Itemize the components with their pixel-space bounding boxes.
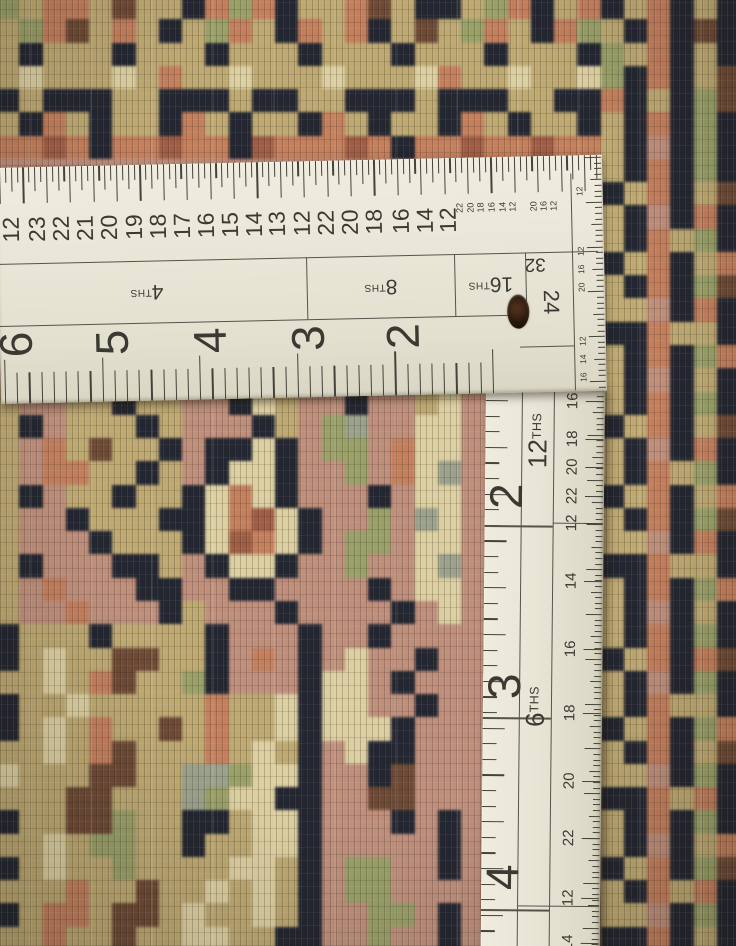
rug-cell xyxy=(229,624,252,647)
inch-line xyxy=(485,525,553,527)
rug-cell xyxy=(461,624,484,647)
tick-mark xyxy=(595,230,602,231)
rug-cell xyxy=(670,880,693,903)
rug-cell xyxy=(717,648,736,671)
rug-cell xyxy=(89,415,112,438)
rug-cell xyxy=(298,461,321,484)
rug-cell xyxy=(647,136,670,159)
ruler-number: 14 xyxy=(560,934,575,946)
rug-cell xyxy=(136,903,159,926)
rug-cell xyxy=(670,694,693,717)
rug-cell xyxy=(647,112,670,135)
tick-mark xyxy=(594,174,601,175)
rug-cell xyxy=(368,485,391,508)
tick-mark xyxy=(151,370,153,401)
rug-cell xyxy=(670,252,693,275)
rug-cell xyxy=(182,578,205,601)
rug-cell xyxy=(252,741,275,764)
rug-cell xyxy=(415,578,438,601)
rug-cell xyxy=(159,508,182,531)
tick-mark xyxy=(592,916,599,917)
rug-cell xyxy=(298,485,321,508)
tick-mark xyxy=(592,866,599,867)
tick-mark xyxy=(356,160,358,175)
rug-cell xyxy=(577,43,600,66)
rug-cell xyxy=(391,717,414,740)
rug-cell xyxy=(89,89,112,112)
rug-cell xyxy=(670,159,693,182)
tick-mark xyxy=(403,159,405,174)
tick-mark xyxy=(594,168,601,169)
rug-cell xyxy=(159,717,182,740)
tick-mark xyxy=(587,480,603,481)
rug-cell xyxy=(182,43,205,66)
rug-cell xyxy=(229,554,252,577)
rug-cell xyxy=(229,648,252,671)
rug-cell xyxy=(19,531,42,554)
rug-cell xyxy=(624,531,647,554)
rug-cell xyxy=(624,461,647,484)
rug-cell xyxy=(415,392,438,415)
rug-cell xyxy=(205,880,228,903)
rug-cell xyxy=(624,717,647,740)
tick-mark xyxy=(593,804,600,805)
rug-cell xyxy=(670,787,693,810)
tick-mark xyxy=(221,163,223,187)
rug-cell xyxy=(19,43,42,66)
rug-cell xyxy=(438,834,461,857)
rug-cell xyxy=(438,531,461,554)
rug-cell xyxy=(601,159,624,182)
rug-cell xyxy=(601,648,624,671)
rug-cell xyxy=(670,136,693,159)
rug-cell xyxy=(694,508,717,531)
tick-mark xyxy=(597,401,604,402)
rug-cell xyxy=(275,880,298,903)
tick-mark xyxy=(98,166,100,181)
ruler-number: 16 xyxy=(389,208,413,234)
ruler-number: 13 xyxy=(266,211,290,237)
rug-cell xyxy=(229,834,252,857)
rug-cell xyxy=(66,787,89,810)
tick-mark xyxy=(595,564,602,565)
tick-mark xyxy=(592,502,603,503)
rug-cell xyxy=(275,66,298,89)
rug-cell xyxy=(694,43,717,66)
ruler-number-large: 2 xyxy=(483,483,529,509)
rug-cell xyxy=(670,461,693,484)
rug-cell xyxy=(275,857,298,880)
tick-mark xyxy=(394,351,396,395)
rug-cell xyxy=(345,415,368,438)
rug-cell xyxy=(345,903,368,926)
ruler-number: 15 xyxy=(219,212,243,238)
ruler-number: 16 xyxy=(195,212,219,238)
rug-cell xyxy=(694,136,717,159)
rug-cell xyxy=(694,89,717,112)
rug-cell xyxy=(275,787,298,810)
tick-mark xyxy=(592,872,599,873)
rug-cell xyxy=(229,601,252,624)
rug-cell xyxy=(601,229,624,252)
rug-cell xyxy=(484,89,507,112)
framing-square-horizontal-arm: 1223222120191817161514131222201816141222… xyxy=(0,155,607,404)
rug-cell xyxy=(694,322,717,345)
tick-mark xyxy=(596,485,603,486)
rug-cell xyxy=(624,485,647,508)
rug-cell xyxy=(717,205,736,228)
rug-cell xyxy=(624,345,647,368)
ruler-number-small: 16 xyxy=(539,201,548,211)
ruler-hole xyxy=(507,294,530,328)
rug-cell xyxy=(112,43,135,66)
rug-cell xyxy=(19,601,42,624)
ruler-number-large: 3 xyxy=(481,673,527,699)
rug-cell xyxy=(112,601,135,624)
tick-mark xyxy=(57,167,59,191)
tick-mark xyxy=(34,167,36,191)
tick-mark xyxy=(589,771,600,772)
rug-cell xyxy=(461,578,484,601)
rug-cell xyxy=(43,694,66,717)
tick-mark xyxy=(482,852,496,853)
rug-cell xyxy=(0,554,19,577)
rug-cell xyxy=(159,857,182,880)
tick-mark xyxy=(408,159,410,183)
rug-cell xyxy=(89,787,112,810)
rug-cell xyxy=(624,322,647,345)
rug-cell xyxy=(438,19,461,42)
tick-mark xyxy=(598,330,605,331)
rug-cell xyxy=(275,461,298,484)
rug-cell xyxy=(601,671,624,694)
rug-cell xyxy=(298,624,321,647)
rug-cell xyxy=(368,810,391,833)
tick-mark xyxy=(595,575,602,576)
tick-mark xyxy=(597,308,604,309)
rug-cell xyxy=(182,857,205,880)
rug-cell xyxy=(19,741,42,764)
tick-mark xyxy=(596,541,603,542)
tick-mark xyxy=(481,930,495,931)
rug-cell xyxy=(252,903,275,926)
rug-cell xyxy=(508,112,531,135)
rug-cell xyxy=(0,601,19,624)
tick-mark xyxy=(591,592,602,593)
rug-cell xyxy=(89,485,112,508)
rug-cell xyxy=(368,136,391,159)
ruler-number: 18 xyxy=(565,430,580,447)
rug-cell xyxy=(229,43,252,66)
rug-cell xyxy=(182,741,205,764)
tick-mark xyxy=(321,161,323,176)
rug-cell xyxy=(205,764,228,787)
tick-mark xyxy=(593,788,600,789)
tick-mark xyxy=(280,162,282,198)
rug-cell xyxy=(275,43,298,66)
tick-mark xyxy=(126,370,128,401)
tick-mark xyxy=(0,168,1,204)
tick-mark xyxy=(212,368,214,399)
rug-cell xyxy=(205,66,228,89)
rug-cell xyxy=(415,717,438,740)
tick-mark xyxy=(483,665,497,666)
tick-mark xyxy=(483,712,497,713)
rug-cell xyxy=(182,554,205,577)
tick-mark xyxy=(482,790,496,791)
rug-cell xyxy=(368,671,391,694)
rug-cell xyxy=(717,438,736,461)
rug-cell xyxy=(508,0,531,19)
rug-cell xyxy=(205,857,228,880)
rug-cell xyxy=(624,694,647,717)
rug-cell xyxy=(182,415,205,438)
tick-mark xyxy=(592,933,599,934)
rug-cell xyxy=(205,671,228,694)
tick-mark xyxy=(594,664,601,665)
rug-cell xyxy=(89,834,112,857)
rug-cell xyxy=(136,112,159,135)
rug-cell xyxy=(461,787,484,810)
rug-cell xyxy=(647,880,670,903)
tick-mark xyxy=(245,163,247,187)
tick-mark xyxy=(273,367,275,398)
rug-cell xyxy=(438,903,461,926)
rug-cell xyxy=(391,787,414,810)
rug-cell xyxy=(322,601,345,624)
rug-cell xyxy=(345,810,368,833)
tick-mark xyxy=(596,491,603,492)
rug-cell xyxy=(252,0,275,19)
rug-cell xyxy=(601,43,624,66)
tick-mark xyxy=(268,162,270,186)
tick-mark xyxy=(520,157,522,172)
rug-cell xyxy=(577,0,600,19)
ruler-number-small: 12 xyxy=(549,201,558,211)
rug-cell xyxy=(275,578,298,601)
tick-mark xyxy=(592,269,603,270)
rug-cell xyxy=(112,880,135,903)
tick-mark xyxy=(596,155,598,179)
tick-mark xyxy=(29,372,31,403)
rug-cell xyxy=(647,461,670,484)
rug-cell xyxy=(415,43,438,66)
rug-cell xyxy=(670,624,693,647)
rug-cell xyxy=(322,880,345,903)
tick-mark xyxy=(584,838,600,839)
rug-cell xyxy=(182,810,205,833)
rug-cell xyxy=(112,485,135,508)
rug-cell xyxy=(438,764,461,787)
ruler-scale-label: 6THS xyxy=(522,686,548,727)
tick-mark xyxy=(596,536,603,537)
rug-cell xyxy=(43,857,66,880)
ruler-number-small: 22 xyxy=(455,203,464,213)
rug-cell xyxy=(159,810,182,833)
rug-cell xyxy=(345,741,368,764)
ruler-number-small: 12 xyxy=(577,246,586,256)
rug-cell xyxy=(415,834,438,857)
rug-cell xyxy=(670,415,693,438)
rug-cell xyxy=(43,554,66,577)
rug-cell xyxy=(531,66,554,89)
rug-cell xyxy=(368,112,391,135)
rug-cell xyxy=(717,322,736,345)
rug-cell xyxy=(415,438,438,461)
rug-cell xyxy=(89,554,112,577)
rug-cell xyxy=(670,485,693,508)
rug-cell xyxy=(182,764,205,787)
rug-cell xyxy=(670,19,693,42)
rug-cell xyxy=(717,298,736,321)
rug-cell xyxy=(275,508,298,531)
rug-cell xyxy=(345,66,368,89)
tick-mark xyxy=(584,155,586,191)
tick-mark xyxy=(17,168,19,183)
rug-cell xyxy=(229,787,252,810)
tick-mark xyxy=(595,580,602,581)
tick-mark xyxy=(291,162,293,186)
rug-cell xyxy=(43,461,66,484)
rug-cell xyxy=(66,485,89,508)
rug-cell xyxy=(229,741,252,764)
rug-cell xyxy=(89,438,112,461)
rug-cell xyxy=(0,694,19,717)
rug-cell xyxy=(89,903,112,926)
tick-mark xyxy=(175,369,177,400)
rug-cell xyxy=(205,624,228,647)
rug-cell xyxy=(647,415,670,438)
rug-cell xyxy=(19,624,42,647)
rug-cell xyxy=(438,717,461,740)
tick-mark xyxy=(593,412,604,413)
tick-mark xyxy=(583,649,601,650)
rug-cell xyxy=(694,903,717,926)
rug-cell xyxy=(577,112,600,135)
rug-cell xyxy=(415,764,438,787)
rug-cell xyxy=(275,136,298,159)
tick-mark xyxy=(486,431,500,432)
tick-mark xyxy=(596,519,603,520)
rug-cell xyxy=(252,112,275,135)
rug-cell xyxy=(43,112,66,135)
rug-cell xyxy=(43,648,66,671)
tick-mark xyxy=(358,365,360,396)
rug-cell xyxy=(252,880,275,903)
tick-mark xyxy=(598,347,605,348)
rug-cell xyxy=(66,66,89,89)
rug-cell xyxy=(275,415,298,438)
rug-photo-scene: 23412THS6THS161820221214161820221214 122… xyxy=(0,0,736,946)
inch-line xyxy=(481,909,549,911)
rug-cell xyxy=(717,764,736,787)
tick-mark xyxy=(373,160,375,196)
rug-cell xyxy=(205,578,228,601)
rug-cell xyxy=(717,182,736,205)
rug-cell xyxy=(670,66,693,89)
rug-cell xyxy=(461,0,484,19)
rug-cell xyxy=(229,927,252,946)
rug-cell xyxy=(670,112,693,135)
rug-cell xyxy=(136,741,159,764)
rug-cell xyxy=(275,601,298,624)
tick-mark xyxy=(496,157,498,172)
rug-cell xyxy=(717,0,736,19)
rug-cell xyxy=(717,624,736,647)
rug-cell xyxy=(345,554,368,577)
rug-cell xyxy=(322,19,345,42)
rug-cell xyxy=(112,787,135,810)
rug-cell xyxy=(252,857,275,880)
rug-cell xyxy=(694,485,717,508)
rug-cell xyxy=(19,554,42,577)
tick-mark xyxy=(492,349,494,393)
rug-cell xyxy=(112,415,135,438)
rug-cell xyxy=(89,880,112,903)
rug-cell xyxy=(508,66,531,89)
tick-mark xyxy=(379,160,381,175)
rug-cell xyxy=(298,112,321,135)
tick-mark xyxy=(139,165,141,201)
tick-mark xyxy=(81,166,83,190)
rug-cell xyxy=(136,880,159,903)
rug-cell xyxy=(647,531,670,554)
rug-cell xyxy=(66,810,89,833)
rug-cell xyxy=(647,694,670,717)
tick-mark xyxy=(426,159,428,174)
rug-cell xyxy=(461,136,484,159)
tick-mark xyxy=(595,648,602,649)
rug-cell xyxy=(391,438,414,461)
rug-cell xyxy=(252,671,275,694)
rug-cell xyxy=(112,438,135,461)
rug-cell xyxy=(112,0,135,19)
rug-cell xyxy=(298,787,321,810)
tick-mark xyxy=(397,159,399,195)
rug-cell xyxy=(298,43,321,66)
rug-cell xyxy=(182,648,205,671)
rug-cell xyxy=(275,671,298,694)
rug-cell xyxy=(438,461,461,484)
rug-cell xyxy=(66,461,89,484)
rug-cell xyxy=(694,601,717,624)
tick-mark xyxy=(595,558,602,559)
tick-mark xyxy=(595,207,602,208)
tick-mark xyxy=(595,218,602,219)
rug-cell xyxy=(647,601,670,624)
tick-mark xyxy=(473,158,475,173)
rug-cell xyxy=(275,834,298,857)
rug-cell xyxy=(19,415,42,438)
tick-mark xyxy=(367,160,369,175)
tick-mark xyxy=(597,424,604,425)
rug-cell xyxy=(647,392,670,415)
rug-cell xyxy=(670,531,693,554)
rug-cell xyxy=(601,182,624,205)
rug-cell xyxy=(391,112,414,135)
rug-cell xyxy=(345,764,368,787)
rug-cell xyxy=(391,927,414,946)
rug-cell xyxy=(322,438,345,461)
tick-mark xyxy=(587,246,603,247)
rug-cell xyxy=(205,43,228,66)
ruler-number: 14 xyxy=(413,208,437,234)
rug-cell xyxy=(531,112,554,135)
rug-cell xyxy=(19,857,42,880)
rug-cell xyxy=(19,66,42,89)
rug-cell xyxy=(508,43,531,66)
rug-cell xyxy=(438,508,461,531)
